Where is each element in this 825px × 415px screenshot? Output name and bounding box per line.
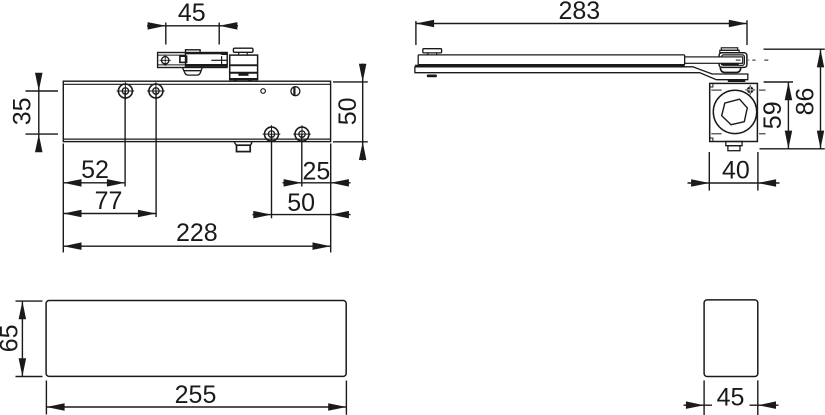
svg-text:52: 52 — [81, 156, 109, 184]
svg-text:77: 77 — [95, 187, 123, 215]
svg-text:45: 45 — [178, 0, 206, 27]
svg-text:65: 65 — [0, 324, 23, 352]
svg-text:35: 35 — [8, 97, 36, 125]
svg-text:59: 59 — [759, 101, 787, 129]
svg-text:45: 45 — [717, 384, 745, 412]
svg-text:50: 50 — [287, 189, 315, 217]
svg-text:50: 50 — [334, 97, 362, 125]
svg-text:228: 228 — [176, 219, 218, 247]
svg-text:283: 283 — [558, 0, 600, 25]
svg-text:40: 40 — [722, 157, 750, 185]
svg-text:86: 86 — [792, 88, 820, 116]
svg-text:25: 25 — [302, 157, 330, 185]
svg-text:255: 255 — [175, 381, 217, 409]
